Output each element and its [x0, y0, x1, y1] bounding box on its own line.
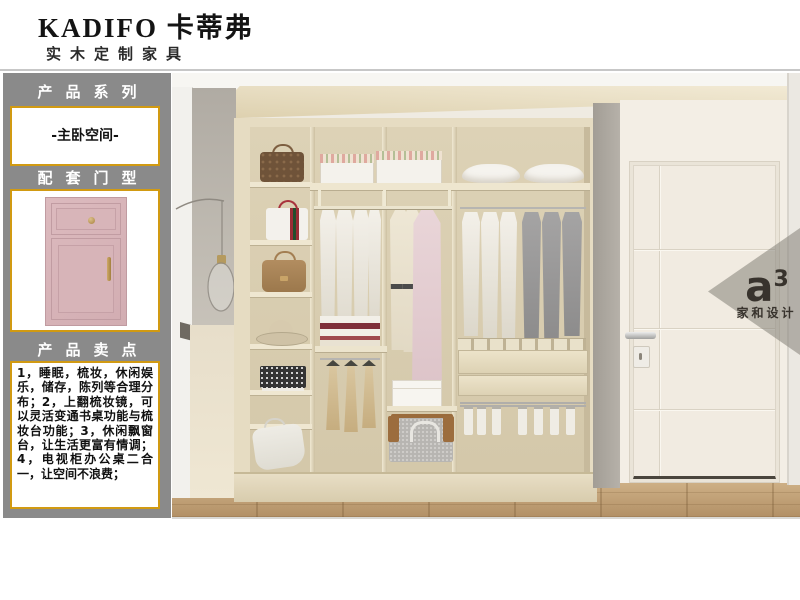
wardrobe [234, 118, 597, 500]
pink-dress [412, 210, 442, 396]
gray-wall-strip [593, 103, 620, 488]
shelf [250, 182, 312, 188]
storage-box [320, 154, 374, 185]
door-drawer-front [51, 203, 121, 235]
section-title-door-type: 配套门型 [3, 167, 171, 188]
door-pull-handle [107, 257, 111, 281]
pillow [524, 164, 584, 183]
door-drawer-panel [56, 208, 116, 230]
divider-panel [310, 127, 315, 472]
monogram-handbag [260, 152, 304, 182]
section-title-selling-points: 产品卖点 [3, 339, 171, 360]
pendant-lamp [172, 193, 236, 313]
photo-bottom-edge [172, 517, 800, 519]
watermark-brand-text: 家和设计 [732, 304, 798, 321]
door-groove [634, 409, 775, 410]
watermark: a3 家和设计 [708, 228, 800, 355]
scarf-rod [320, 358, 380, 360]
hanging-garment [368, 210, 381, 330]
hanging-trousers [550, 406, 559, 435]
selling-point-4: 4，电视柜办公桌二合一，让空间不浪费； [17, 452, 153, 480]
hanging-trousers [518, 406, 527, 435]
folded-linen [262, 388, 304, 391]
door-lock-plate [633, 346, 650, 368]
white-shirt [481, 212, 499, 340]
door-lever-handle [625, 332, 656, 339]
shelf [250, 240, 312, 246]
gray-garment [542, 212, 561, 340]
section-title-series: 产品系列 [3, 81, 171, 102]
hanging-rod [314, 206, 452, 210]
shelf [250, 292, 312, 298]
left-lower-wall [190, 325, 236, 498]
hanging-trousers [534, 406, 543, 435]
hanging-trousers [464, 406, 473, 435]
storage-box [376, 151, 442, 185]
folded-clothes [320, 329, 380, 336]
header-divider [0, 69, 800, 71]
hanging-rod [460, 207, 586, 209]
hanging-trousers [492, 406, 501, 435]
brand-logo: KADIFO 卡蒂弗 [38, 6, 254, 45]
gray-garment [522, 212, 541, 338]
folded-clothes [320, 316, 380, 323]
wardrobe-plinth [234, 472, 597, 502]
interior-shade [584, 127, 590, 472]
sidebar: 产品系列 -主卧空间- 配套门型 产品卖点 1，睡眠，梳妆，休闲娱乐，储存，陈列… [3, 73, 171, 518]
white-shirt [500, 212, 517, 342]
door-knob [88, 217, 95, 224]
white-shirt [462, 212, 480, 336]
straw-hat-brim [256, 332, 308, 346]
watermark-logo: a3 [738, 260, 796, 307]
door-type-card [10, 189, 160, 332]
door-leaf-front [51, 238, 121, 320]
product-photo: a3 家和设计 [172, 73, 800, 519]
brand-tagline: 实木定制家具 [46, 43, 190, 64]
striped-handbag [266, 208, 308, 240]
white-storage-box [392, 380, 442, 408]
leather-handbag [262, 260, 306, 292]
shelf [315, 346, 387, 353]
hanging-trousers [477, 406, 486, 435]
shelf [387, 406, 457, 412]
selling-points-card: 1，睡眠，梳妆，休闲娱乐，储存，陈列等合理分布；2，上翻梳妆镜，可以灵活变通书桌… [10, 361, 160, 509]
door-groove [659, 166, 660, 476]
watermark-logo-3: 3 [774, 267, 789, 292]
pillow [462, 164, 520, 183]
drawer [458, 375, 588, 396]
series-card: -主卧空间- [10, 106, 160, 166]
door-leaf-panel [58, 245, 114, 313]
trouser-rail [460, 402, 586, 404]
gray-garment [562, 212, 582, 336]
hanging-trousers [566, 406, 575, 435]
patterned-cloth [260, 366, 306, 388]
pink-door-swatch [45, 197, 127, 326]
basket-handle [410, 421, 440, 442]
catalog-page: KADIFO 卡蒂弗 实木定制家具 产品系列 -主卧空间- 配套门型 产品卖点 … [0, 0, 800, 600]
drawer [458, 350, 588, 374]
